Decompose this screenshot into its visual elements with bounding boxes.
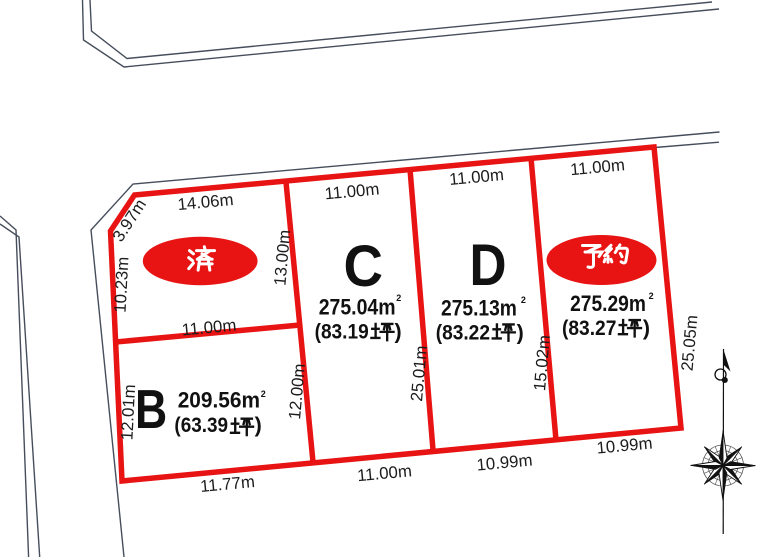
svg-text:): ) <box>643 316 650 340</box>
svg-text:D: D <box>470 233 507 298</box>
svg-text:14.06m: 14.06m <box>177 190 235 214</box>
svg-text:): ) <box>517 321 524 345</box>
svg-text:275.13m: 275.13m <box>441 296 517 321</box>
svg-text:B: B <box>135 378 167 440</box>
svg-text:2: 2 <box>396 293 401 303</box>
svg-text:2: 2 <box>521 295 526 305</box>
svg-text:2: 2 <box>261 389 266 399</box>
svg-text:(83.22: (83.22 <box>436 321 490 345</box>
svg-text:275.29m: 275.29m <box>570 291 646 316</box>
svg-text:11.00m: 11.00m <box>356 461 412 485</box>
svg-text:): ) <box>255 413 262 437</box>
svg-text:209.56m: 209.56m <box>178 388 260 413</box>
svg-text:11.77m: 11.77m <box>199 472 255 496</box>
svg-text:): ) <box>395 320 402 344</box>
svg-text:10.23m: 10.23m <box>111 256 133 313</box>
svg-text:10.99m: 10.99m <box>476 450 534 474</box>
svg-text:(63.39: (63.39 <box>174 413 228 437</box>
svg-text:(83.19: (83.19 <box>315 320 369 344</box>
svg-text:11.00m: 11.00m <box>324 179 380 203</box>
svg-text:11.00m: 11.00m <box>448 165 504 189</box>
svg-text:(83.27: (83.27 <box>562 316 616 340</box>
svg-text:13.00m: 13.00m <box>270 229 294 286</box>
svg-text:11.00m: 11.00m <box>569 155 625 179</box>
svg-text:275.04m: 275.04m <box>319 295 396 320</box>
svg-text:25.05m: 25.05m <box>678 314 702 371</box>
svg-text:10.99m: 10.99m <box>596 433 654 457</box>
svg-text:2: 2 <box>649 291 654 301</box>
svg-text:12.00m: 12.00m <box>285 363 309 420</box>
svg-text:C: C <box>344 234 384 299</box>
svg-text:11.00m: 11.00m <box>181 316 237 340</box>
